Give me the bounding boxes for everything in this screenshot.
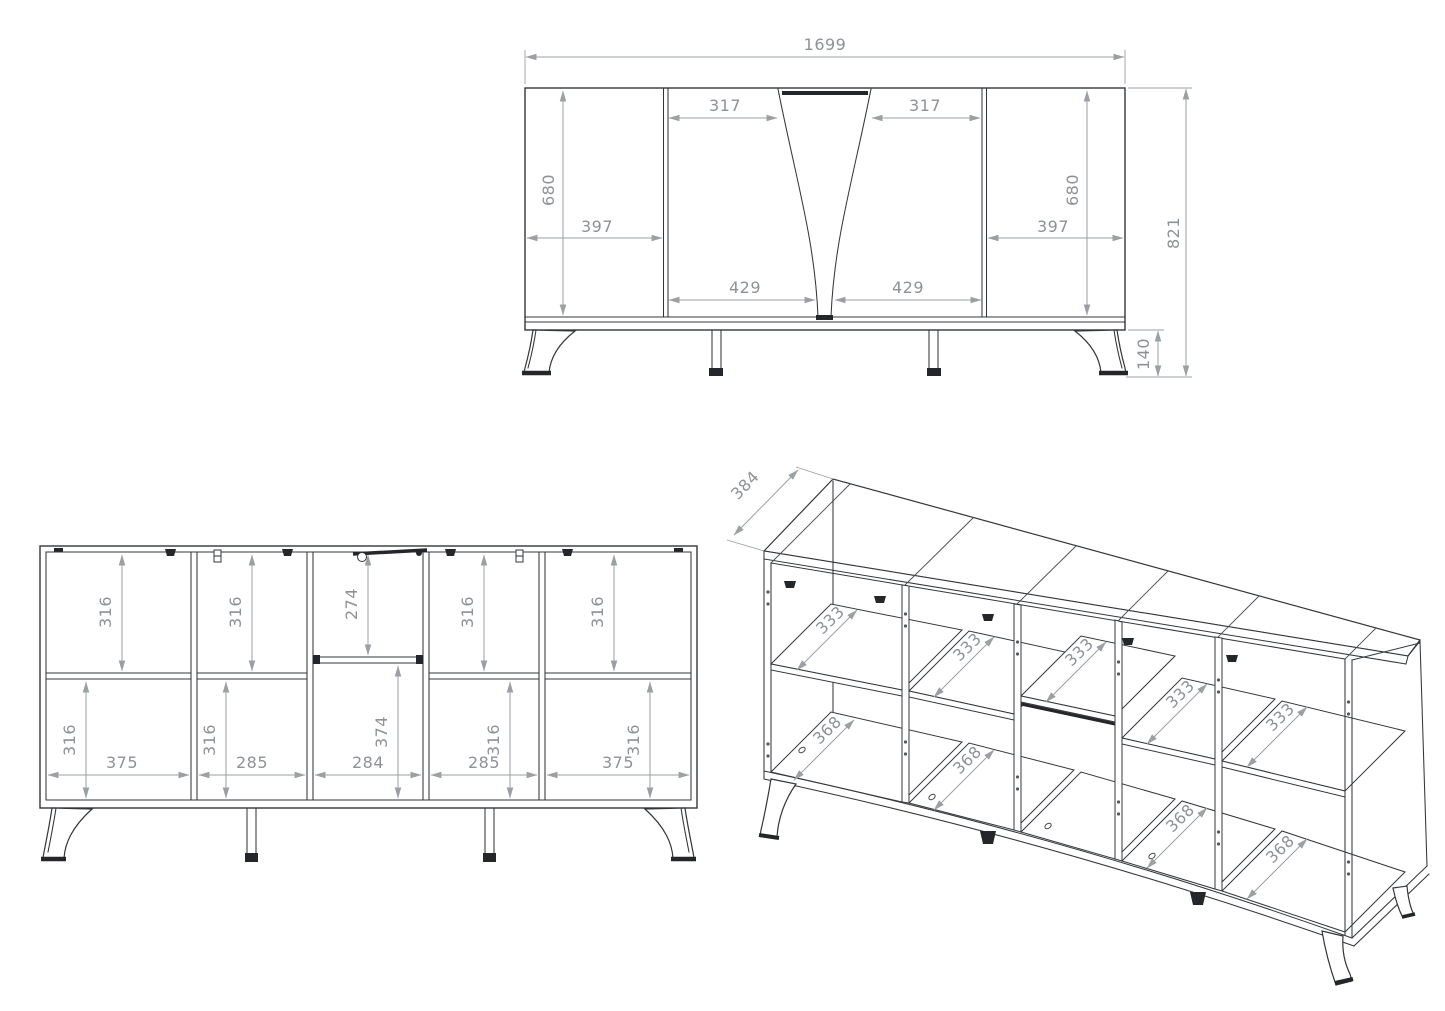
dim-width-4: 285 [468,753,500,772]
dim-left-door-width: 397 [581,217,613,236]
drawer-roller-left [358,553,367,562]
front-left-leg [760,779,796,837]
center-right-leg [929,330,938,368]
sideboard-drawing: 1699 821 140 680 397 680 397 317 317 429… [0,0,1445,1011]
center-left-leg [247,808,256,853]
front-view-dimensions: 1699 821 140 680 397 680 397 317 317 429… [525,35,1192,377]
shelves [46,657,691,679]
dim-top-height-2: 316 [226,596,245,628]
center-right-foot [1190,892,1206,905]
funnel-left-curve [778,89,818,317]
divider-2 [1014,604,1021,832]
cabinet-outline [525,88,1125,330]
hinge-plate [874,596,886,603]
center-right-foot [927,368,941,376]
isometric-view: 384 333 333 333 333 333 368 368 368 368 [727,467,1429,985]
front-elevation-view: 1699 821 140 680 397 680 397 317 317 429… [522,35,1192,377]
drawer-roller-right [416,550,422,556]
glide-end-right [416,655,423,664]
hinge-plate [1226,655,1238,662]
left-curved-leg [43,808,92,858]
dim-bottom-height-5: 316 [624,724,643,756]
divider-3 [1115,620,1122,861]
internal-view-legs [41,808,696,862]
hinge-mark [674,548,683,552]
center-left-foot [980,831,996,844]
center-left-leg [712,330,721,368]
dim-top-height-4: 316 [458,596,477,628]
front-view-legs [522,330,1128,376]
hinge-mark [54,548,63,552]
funnel-right-curve [831,89,871,317]
center-right-foot [483,853,496,862]
dim-right-door-width: 397 [1037,217,1069,236]
dim-depth: 384 [727,467,763,503]
front-right-leg [1322,931,1352,985]
hinge-plate [562,549,573,556]
handle-recess [782,91,868,95]
internal-view-dimensions: 316 316 274 316 316 316 316 374 316 316 … [48,555,689,798]
hinge-plate [445,549,456,556]
divider-1 [902,585,909,803]
dim-mid-bottom-right: 429 [892,278,924,297]
dim-width-3: 284 [352,753,384,772]
dim-mid-bottom-left: 429 [729,278,761,297]
dim-bottom-height-4: 316 [484,724,503,756]
hinge-plate [165,549,176,556]
dim-width-2: 285 [236,753,268,772]
dim-top-height-3: 274 [342,588,361,620]
technical-drawing-page: 1699 821 140 680 397 680 397 317 317 429… [0,0,1445,1011]
door-gaps [664,88,987,317]
dim-left-door-height: 680 [539,174,558,206]
dim-overall-height: 821 [1164,217,1183,249]
dim-mid-top-left: 317 [709,96,741,115]
dim-bottom-height-2: 316 [200,724,219,756]
internal-front-view: 316 316 274 316 316 316 316 374 316 316 … [40,546,697,862]
divider-4 [1215,637,1222,891]
hinge-plate [282,549,293,556]
hinge-plate [982,614,994,621]
dim-right-door-height: 680 [1063,174,1082,206]
dim-overall-width: 1699 [804,35,847,54]
dim-top-height-5: 316 [588,596,607,628]
dim-width-5: 375 [602,753,634,772]
hinge-plate [1122,638,1134,645]
dim-top-height-1: 316 [96,596,115,628]
right-curved-leg [645,808,694,858]
dim-leg-height: 140 [1134,338,1153,370]
glide-end-left [313,655,320,664]
dim-width-1: 375 [106,753,138,772]
center-left-foot [245,853,258,862]
dim-mid-top-right: 317 [909,96,941,115]
center-right-leg [485,808,494,853]
center-left-foot [709,368,723,376]
handle-recess-bottom [816,315,833,320]
dim-bottom-height-1: 316 [60,724,79,756]
dim-bottom-height-3: 374 [372,716,391,748]
hinge-plate [784,581,796,588]
